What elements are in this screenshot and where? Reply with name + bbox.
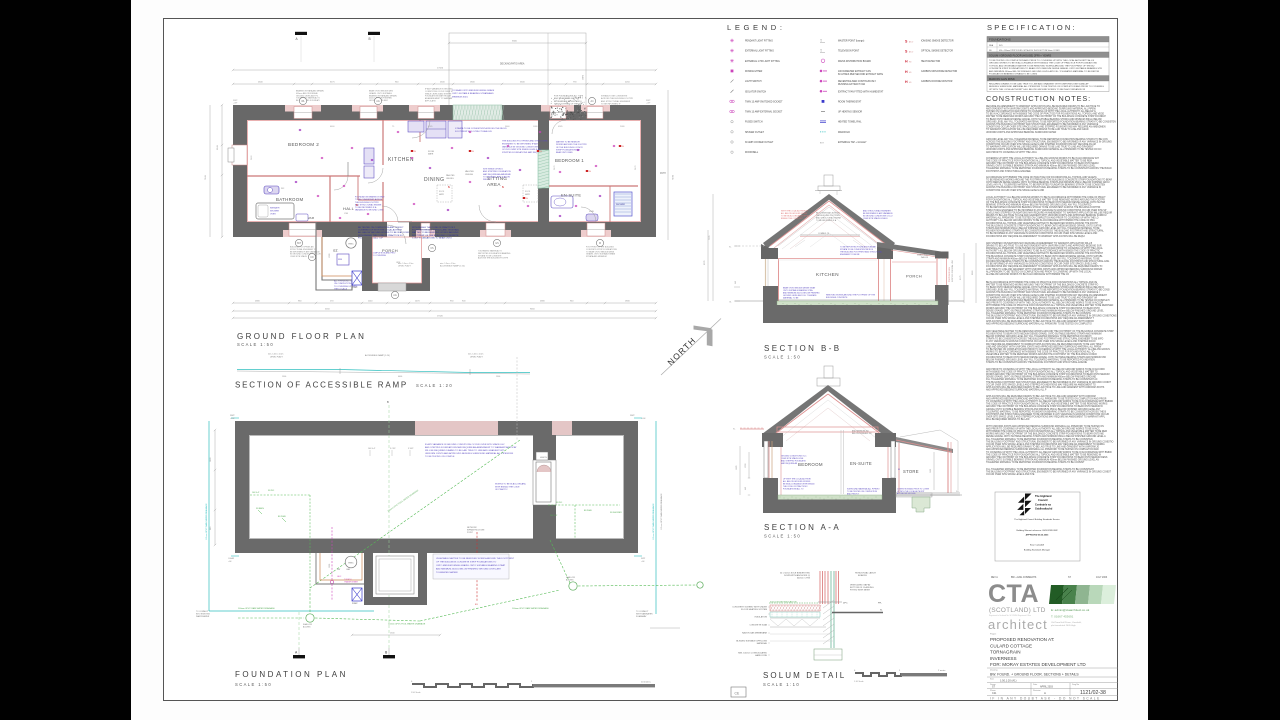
svg-text:SITE SPACE LEVELS: SITE SPACE LEVELS <box>483 168 503 171</box>
svg-text:STORE: STORE <box>903 469 919 474</box>
svg-text:RADON GAS MEMBRANE: RADON GAS MEMBRANE <box>742 632 768 635</box>
svg-text:ALL PIPEWORK TO BE TESTED ON C: ALL PIPEWORK TO BE TESTED ON COMPLETION … <box>986 270 1092 273</box>
svg-text:architect: architect <box>988 617 1048 632</box>
svg-text:BEDROOM 2: BEDROOM 2 <box>288 142 319 147</box>
svg-text:INFRASTRUCTURE: INFRASTRUCTURE <box>467 529 485 532</box>
svg-text:SHALLOW: SHALLOW <box>303 623 312 626</box>
svg-text:TO BE IN ACCORDANCE WITH BS800: TO BE IN ACCORDANCE WITH BS8000 THE CODE… <box>986 113 1105 116</box>
svg-text:BELOW FINISHED GR: BELOW FINISHED GR <box>852 433 872 435</box>
svg-text:Dwg No: Dwg No <box>1072 684 1080 686</box>
svg-text:THE CODE OF PRACTICE FOR FOUND: THE CODE OF PRACTICE FOR FOUNDATIONS ALL… <box>986 453 1102 456</box>
svg-text:WC: WC <box>281 188 285 190</box>
svg-text:HEARTH: HEARTH <box>540 456 548 459</box>
svg-text:440: 440 <box>745 487 747 490</box>
svg-text:AICO: AICO <box>909 50 914 53</box>
svg-text:Council: Council <box>1038 498 1048 502</box>
svg-text:940: 940 <box>735 281 737 284</box>
svg-text:HEATED TOWEL RAIL: HEATED TOWEL RAIL <box>838 121 862 124</box>
svg-text:BW + ENG COMMENTS: BW + ENG COMMENTS <box>1011 577 1037 579</box>
svg-text:ALL BELOW GROUND WORKS TO BE I: ALL BELOW GROUND WORKS TO BE IN ACCORDAN… <box>986 273 1069 276</box>
svg-text:LIGHT SWITCH: LIGHT SWITCH <box>745 81 762 83</box>
svg-text:TO BEAR ONTO MEDIUM DENSE GRAV: TO BEAR ONTO MEDIUM DENSE GRAVEL ONTO SU… <box>986 118 1103 121</box>
svg-text:REQUIRED DRAINS TO BE LAID TRU: REQUIRED DRAINS TO BE LAID TRUE TO LINE … <box>989 82 1089 85</box>
svg-text:100mm UPVC FOUL WATER DRAINAGE: 100mm UPVC FOUL WATER DRAINAGE <box>388 623 426 626</box>
svg-text:TO BE TESTED ON COMPLETION AND: TO BE TESTED ON COMPLETION AND PRIOR TO … <box>989 59 1095 62</box>
svg-text:STRATA AND MINIMUM 450mm BELOW: STRATA AND MINIMUM 450mm BELOW FINISHED … <box>986 227 1100 230</box>
svg-text:WITH BS8000 THE CODE OF PRACTI: WITH BS8000 THE CODE OF PRACTICE FO <box>358 234 403 237</box>
svg-text:STRATA AND MINIMUM: STRATA AND MINIMUM <box>586 255 607 258</box>
svg-text:FILL TOLERATED MATERIAL TO BE: FILL TOLERATED MATERIAL TO BE REPORTED F… <box>986 438 1093 441</box>
svg-text:REV A: REV A <box>991 576 998 579</box>
svg-text:WASTEWATER: WASTEWATER <box>196 615 210 618</box>
svg-text:AND PRIOR TO COVERING UP WITH: AND PRIOR TO COVERING UP WITH THE LOCA <box>986 151 1037 154</box>
svg-text:KITCHEN: KITCHEN <box>388 157 414 163</box>
svg-text:LEGEND:: LEGEND: <box>727 23 786 32</box>
svg-text:ACROSS THE BUILDING FOOTPR: ACROSS THE BUILDING FOOTPR <box>478 257 509 260</box>
svg-text:WORKS TO BE IN ACCORDANCE WITH: WORKS TO BE IN ACCORDANCE WITH BS8000 TH… <box>986 351 1095 354</box>
svg-text:1500: 1500 <box>282 376 286 378</box>
svg-text:APPLICATIO: APPLICATIO <box>425 100 437 103</box>
svg-text:CONCRETE STRIP FOUNDATIONS TO: CONCRETE STRIP FOUNDATIONS TO BEAR ONTO … <box>989 67 1102 70</box>
svg-text:VEGETABLE MATTER TO BE REMOVED: VEGETABLE MATTER TO BE REMOVED WORKS ARO… <box>986 353 1097 356</box>
svg-text:TO BEAR ONTO MEDIUM DENSE GRAV: TO BEAR ONTO MEDIUM DENSE GRAVEL ONTO SU… <box>986 286 1105 289</box>
svg-text:2G: 2G <box>414 151 416 153</box>
svg-text:WITH RAINWATER: WITH RAINWATER <box>636 613 653 616</box>
svg-text:FOOTPRINT AND STRUCTURAL ENGIN: FOOTPRINT AND STRUCTURAL ENGINEE <box>986 170 1031 173</box>
svg-text:FOOTPRINT AND STRUCTURAL EN: FOOTPRINT AND STRUCTURAL EN <box>455 130 492 133</box>
svg-text:ACROSS THE BUILDING FOOTPRINT: ACROSS THE BUILDING FOOTPRINT AND STRUCT… <box>986 123 1099 126</box>
svg-text:CLEAR: CLEAR <box>228 557 235 560</box>
svg-text:ACCESSIBLE RAMP (1:20): ACCESSIBLE RAMP (1:20) <box>440 265 465 268</box>
svg-text:LEVELS AND STEPPED FOUNDATIONS: LEVELS AND STEPPED FOUNDATIONS MAY REQUI… <box>986 211 1112 214</box>
svg-text:STEPPED FOUNDATIONS MAY REQ: STEPPED FOUNDATIONS MAY REQ <box>502 151 538 154</box>
svg-text:min. 1.5m x 1.5m: min. 1.5m x 1.5m <box>268 354 284 356</box>
svg-text:ENGINEER TO BE INF: ENGINEER TO BE INF <box>840 254 860 256</box>
svg-text:AND APPROVED BEDDING SURROUND: AND APPROVED BEDDING SURROUND MATERIAL A… <box>986 448 1099 451</box>
svg-text:GRAVEL ONTO SUITABLE BEARING S: GRAVEL ONTO SUITABLE BEARING STRATA AND … <box>986 165 1096 168</box>
svg-text:SECTION A-A: SECTION A-A <box>764 523 841 532</box>
svg-text:AND PRIOR T: AND PRIOR T <box>847 493 860 496</box>
svg-text:100 S+P: 100 S+P <box>368 448 376 450</box>
svg-text:GROUND FLOOR PLAN: GROUND FLOOR PLAN <box>237 332 366 341</box>
svg-text:AND APPROVED BEDDING SURROUND: AND APPROVED BEDDING SURROUND MATERIAL A… <box>986 322 1092 325</box>
svg-text:HARDCORE: HARDCORE <box>755 654 768 657</box>
svg-text:WM: WM <box>338 259 342 261</box>
svg-text:BEDDING SURROUND MATERIAL ALL: BEDDING SURROUND MATERIAL ALL PIPEWORK T… <box>989 85 1104 88</box>
svg-text:KITCHEN: KITCHEN <box>816 272 839 277</box>
svg-text:CONDITIONS OCCUR OVER SITE SPA: CONDITIONS OCCUR OVER SITE SPACE LEVELS … <box>986 189 1044 192</box>
svg-text:MATERIAL ALL PIPEWORK TO BE TE: MATERIAL ALL PIPEWORK TO BE TESTED ON CO… <box>986 247 1104 250</box>
svg-text:OCCUR OVER SITE SPACE LEVELS A: OCCUR OVER SITE SPACE LEVELS AND STEPPED… <box>986 443 1105 446</box>
svg-text:450 x 150mm STRIP FOUND. WITH: 450 x 150mm STRIP FOUND. WITH A 150 THIC… <box>999 49 1060 52</box>
svg-text:STRATA AND MINIMUM 450mm BELOW: STRATA AND MINIMUM 450mm BELOW FINISHED … <box>986 257 1100 260</box>
svg-text:APPROVED 06.05.2003: APPROVED 06.05.2003 <box>1026 534 1049 537</box>
svg-text:HWC: HWC <box>348 243 354 245</box>
svg-text:1:50,1:20 (A1): 1:50,1:20 (A1) <box>1000 678 1017 682</box>
svg-text:ISOLATOR SWITCH: ISOLATOR SWITCH <box>745 90 766 93</box>
svg-text:S: S <box>502 185 504 189</box>
svg-text:SCALE 1:20: SCALE 1:20 <box>416 383 453 388</box>
svg-text:4400: 4400 <box>398 376 402 378</box>
svg-text:AROUND THE FOOTPRINT OF THE BU: AROUND THE FOOTPRINT OF THE BUILDINGS CO… <box>986 405 1103 408</box>
svg-text:OF THE BUILDINGS CONCRETE STRI: OF THE BUILDINGS CONCRETE STRIP FOUNDATI… <box>986 201 1106 204</box>
svg-text:OVER: OVER <box>270 214 276 216</box>
svg-text:CEILING: CEILING <box>465 174 473 176</box>
svg-text:T: 01667 453691: T: 01667 453691 <box>1051 615 1074 619</box>
svg-text:CO: CO <box>310 256 314 259</box>
svg-text:MATERIAL ALL PIPEWORK TO BE TE: MATERIAL ALL PIPEWORK TO BE TESTED ON CO… <box>986 217 1099 220</box>
svg-text:FILL TOLERATED MATERIAL TO BE: FILL TOLERATED MATERIAL TO BE REPORTED F… <box>986 312 1091 315</box>
svg-text:WILL BE REQUIRED DRAINS TO BE: WILL BE REQUIRED DRAINS TO BE LAID <box>986 418 1030 421</box>
svg-text:AROUND THE FOOTPRINT OF THE BU: AROUND THE FOOTPRINT OF THE BUILDINGS CO… <box>986 456 1108 459</box>
svg-text:H: H <box>905 80 908 84</box>
svg-text:FOR: MORAY ESTATES DEVELOPMENT: FOR: MORAY ESTATES DEVELOPMENT LTD <box>990 662 1086 667</box>
svg-text:ACROSS THE BUILDING FOOTPRINT: ACROSS THE BUILDING FOOTPRINT AND STRUCT… <box>986 291 1100 294</box>
svg-text:ACCESSIBLE RAMP (1:20): ACCESSIBLE RAMP (1:20) <box>365 354 390 357</box>
svg-text:H: H <box>905 60 908 64</box>
svg-text:TO WARRANT APPLICATION WILL BE: TO WARRANT APPLICATION WILL BE REQUIRED … <box>986 128 1089 131</box>
svg-text:1500: 1500 <box>496 376 500 378</box>
svg-text:TO WARRANT APPLICATION WILL BE: TO WARRANT APPLICATION WILL BE REQUIRED … <box>986 296 1097 299</box>
svg-text:+LGF: +LGF <box>646 103 650 105</box>
svg-text:2 metre: 2 metre <box>938 669 946 672</box>
svg-text:DENSE GRAVEL ONTO SUITABLE BEA: DENSE GRAVEL ONTO SUITABLE BEARING STRAT… <box>986 376 1096 379</box>
svg-text:RWP: RWP <box>230 415 235 417</box>
svg-text:TO BE INFORMED IF ANY VARIANCE: TO BE INFORMED IF ANY VARIANCE IN GROUND… <box>986 232 1098 235</box>
svg-text:EN-SUITE: EN-SUITE <box>850 461 872 466</box>
svg-text:WORKS AROUND THE FOOTPRINT OF: WORKS AROUND THE FOOTPRINT OF THE BUILDI… <box>986 307 1100 310</box>
svg-text:Drawing: Drawing <box>990 669 997 671</box>
svg-text:GROUND LEVEL ANY FILL TOLERATE: GROUND LEVEL ANY FILL TOLERATED MATERIAL… <box>986 138 1108 141</box>
svg-text:SPECIFICATION:: SPECIFICATION: <box>987 23 1077 32</box>
svg-text:WITH BS8000 THE CODE OF PRACTI: WITH BS8000 THE CODE OF PRACTICE FOR FOU… <box>986 304 1114 307</box>
svg-text:ONTO SUITABLE BEARING STRATA A: ONTO SUITABLE BEARING STRATA AND <box>452 92 494 95</box>
svg-text:GRAVEL ONTO SUITABLE BEARING S: GRAVEL ONTO SUITABLE BEARING STRATA AND … <box>986 408 1101 411</box>
svg-text:Gaidhealtachd: Gaidhealtachd <box>1035 508 1053 511</box>
svg-text:ONTO MEDIUM DENSE GRAVEL ONTO: ONTO MEDIUM DENSE GRAVEL ONTO SUITABLE B… <box>986 181 1110 184</box>
svg-text:2G: 2G <box>526 198 528 200</box>
svg-text:17320: 17320 <box>437 316 444 318</box>
svg-text:GROUND LEVEL ANY FILL TOLERATE: GROUND LEVEL ANY FILL TOLERATED MATERIAL… <box>986 120 1116 123</box>
svg-text:INVERNESS: INVERNESS <box>990 656 1017 661</box>
svg-text:S: S <box>448 185 450 189</box>
svg-text:FFL: FFL <box>956 491 959 493</box>
svg-text:AND APPROVED BEDDING SURROUND: AND APPROVED BEDDING SURROUND MATERIAL A… <box>986 397 1107 400</box>
svg-text:FOUNDATIONS ALL TO: FOUNDATIONS ALL TO <box>783 488 804 491</box>
svg-text:LEVEL PLATT: LEVEL PLATT <box>470 355 484 358</box>
svg-text:SS SHOWER: SS SHOWER <box>610 512 622 514</box>
svg-text:2G: 2G <box>589 171 591 173</box>
svg-text:SHOWER: SHOWER <box>270 211 280 213</box>
svg-text:THE BUILDING FOOTPRINT AND STR: THE BUILDING FOOTPRINT AND STRUCTURA <box>502 140 548 143</box>
svg-text:COMBED 78: COMBED 78 <box>818 233 829 235</box>
svg-text:The Highland: The Highland <box>1035 494 1052 498</box>
svg-text:S: S <box>356 203 358 207</box>
svg-text:WITH BS8000 THE CODE OF PRACTI: WITH BS8000 THE CODE OF PRACTICE FOR FOU… <box>986 430 1107 433</box>
svg-text:2G: 2G <box>472 151 474 153</box>
svg-text:600mm CTRS: 600mm CTRS <box>797 578 811 580</box>
svg-text:AND MINIMUM 450mm BELOW FINISH: AND MINIMUM 450mm BELOW FINISHED GROUND … <box>436 568 501 571</box>
svg-text:LINE AND GRADIENT WITH UNIFORM: LINE AND GRADIENT WITH UNIFORM JOINTS AN… <box>986 345 1102 348</box>
svg-text:AUTHORITY ALL BELOW GROUND WOR: AUTHORITY ALL BELOW GROUND WORKS TO BE I… <box>986 250 1100 253</box>
svg-text:UNIFORM JOINTS AND APPROVED BE: UNIFORM JOINTS AND APPROVED BEDDING SURR… <box>425 452 514 455</box>
svg-text:The Highland Council Building: The Highland Council Building Standards … <box>1014 518 1060 521</box>
svg-text:OVER SITE SPACE: OVER SITE SPACE <box>290 255 308 258</box>
svg-text:30 AMP COOKER OUTLET: 30 AMP COOKER OUTLET <box>745 141 774 144</box>
svg-text:5600: 5600 <box>512 41 518 43</box>
svg-text:CULARD COTTAGE: CULARD COTTAGE <box>990 643 1032 648</box>
svg-text:BS WHB: BS WHB <box>584 510 592 512</box>
svg-text:LAID TRUE TO LINE AND GRADIENT: LAID TRUE TO LINE AND GRADIENT WITH UNIF… <box>986 268 1103 271</box>
svg-text:AND PRIOR TO COVERING UP WITH: AND PRIOR TO COVERING UP WITH THE LOCAL … <box>986 302 1103 305</box>
svg-text:AND STRUCTURAL ENGINEER: AND STRUCTURAL ENGINEER <box>601 100 631 103</box>
svg-text:FOUNDATION BEARING STRATA TO B: FOUNDATION BEARING STRATA TO BE CONSISTE… <box>986 260 1109 263</box>
svg-text:MATERIAL TO BE: MATERIAL TO BE <box>783 297 799 300</box>
svg-text:UP WITH THE LOCAL AUTHORITY AL: UP WITH THE LOCAL AUTHORITY ALL BELOW GR… <box>989 88 1086 91</box>
svg-text:BEAR ONTO MED: BEAR ONTO MED <box>556 151 573 154</box>
svg-text:WORKS AROUND THE FOOTPRI: WORKS AROUND THE FOOTPRI <box>556 143 587 146</box>
svg-text:OCCUR OVER SITE SPACE LEVELS A: OCCUR OVER SITE SPACE LEVELS AND STE <box>986 473 1035 476</box>
svg-text:AND VEGETABLE MATTER T: AND VEGETABLE MATTER T <box>554 97 582 100</box>
svg-text:TO BE REPORTED FOUNDATION BEAR: TO BE REPORTED FOUNDATION BEARING STRATA… <box>986 206 1101 209</box>
svg-text:FOOTPRINT OF THE BUILDINGS CON: FOOTPRINT OF THE BUILDINGS CONCRETE <box>412 235 459 237</box>
svg-text:B: B <box>387 400 389 404</box>
svg-text:FOUNDATIONS ALL TOPSOIL AND VE: FOUNDATIONS ALL TOPSOIL AND VEGETABL <box>412 228 460 231</box>
svg-text:UNIFORM JOINTS AND APPROVED BE: UNIFORM JOINTS AND APPROVED BEDDING SURR… <box>986 131 1057 134</box>
svg-text:SCALE 1:50: SCALE 1:50 <box>764 534 801 539</box>
svg-text:BS8000 THE CODE OF P: BS8000 THE CODE OF P <box>781 218 804 220</box>
svg-text:EXTERNAL 1 HR LIGHT FITTING: EXTERNAL 1 HR LIGHT FITTING <box>745 60 780 63</box>
svg-text:AG: AG <box>376 100 380 103</box>
svg-text:LOCAL AUTHORITY ALL BELOW GROU: LOCAL AUTHORITY ALL BELOW GROUND WORKS T… <box>986 196 1106 199</box>
svg-text:100mm UPVC RAIN WATER DRAINAGE: 100mm UPVC RAIN WATER DRAINAGE <box>238 607 275 610</box>
svg-text:WITH BS8000 THE CODE OF PRACTI: WITH BS8000 THE CODE OF PRACTICE F <box>412 226 456 229</box>
svg-text:TO COVERING UP WITH THE LOCAL: TO COVERING UP WITH THE LOCAL AUTHORITY … <box>986 400 1114 403</box>
svg-text:SECTION OF ACCESSIBLE RAMP: SECTION OF ACCESSIBLE RAMP <box>235 381 408 390</box>
svg-text:SS WC: SS WC <box>556 502 563 504</box>
svg-text:CONDITIONS OCCUR OVER SITE SPA: CONDITIONS OCCUR OVER SITE SPACE LEVELS … <box>986 126 1106 129</box>
svg-text:COVERING UP WITH THE LOCAL AUT: COVERING UP WITH THE LOCAL AUTHORITY ALL… <box>986 157 1100 160</box>
svg-text:MATR: MATR <box>439 193 445 196</box>
svg-text:MATTER TO BE REMOVED WORKS ARO: MATTER TO BE REMOVED WORKS AROUND THE FO… <box>986 115 1106 118</box>
svg-text:POINT: POINT <box>467 532 474 534</box>
svg-text:TO BE INFORMED IF ANY VARIANCE: TO BE INFORMED IF ANY VARIANCE IN GROUND… <box>986 263 1098 266</box>
svg-text:GRAVEL ONTO SUITABLE BEARING S: GRAVEL ONTO SUITABLE BEARING STRATA AND … <box>986 459 1099 462</box>
svg-text:ST: ST <box>992 686 996 689</box>
svg-text:FOUNDATIONS: FOUNDATIONS <box>989 38 1011 42</box>
svg-text:AG: AG <box>393 294 397 297</box>
svg-text:CONDITIONS OCCUR OVER SITE SPA: CONDITIONS OCCUR OVER SITE SPACE LEVELS … <box>986 143 1096 146</box>
svg-text:THE BUILDING FOOTPRINT AND STR: THE BUILDING FOOTPRINT AND STRUCTURAL EN… <box>986 440 1114 443</box>
svg-text:H: H <box>905 70 908 74</box>
svg-text:BW. FOUND. + GROUND FLOOR. SEC: BW. FOUND. + GROUND FLOOR. SECTIONS + DE… <box>990 673 1079 677</box>
svg-text:MANIFOLD: MANIFOLD <box>838 131 850 134</box>
svg-text:Comhairle na: Comhairle na <box>1035 504 1051 507</box>
svg-text:WILL B: WILL B <box>483 179 490 181</box>
svg-text:3 CSP: 3 CSP <box>390 448 396 450</box>
svg-text:STRUCTURAL ENGINEER TO BE INFO: STRUCTURAL ENGINEER TO BE INFORMED IF AN… <box>986 209 1107 212</box>
svg-text:LEVEL ANY FILL TOLERATED MATER: LEVEL ANY FILL TOLERATED MATERIAL TO BE … <box>986 184 1105 187</box>
svg-text:STRATA TO BE CONSISTEN: STRATA TO BE CONSISTEN <box>601 95 628 98</box>
svg-text:TO BE CONSISTENT ACROS: TO BE CONSISTENT ACROS <box>355 198 383 201</box>
svg-text:60 LITRES PER SECOND EXTRACT R: 60 LITRES PER SECOND EXTRACT RATE <box>838 73 883 76</box>
svg-text:VAULTED: VAULTED <box>465 170 474 173</box>
svg-text:M: M <box>599 242 601 245</box>
svg-text:FOOTPRINT AND STRUCTURAL ENGIN: FOOTPRINT AND STRUCTURAL ENGINEER TO BE … <box>986 413 1109 416</box>
svg-text:BEARING STRATA AND MINIMUM 450: BEARING STRATA AND MINIMUM 450mm BELOW F… <box>986 204 1092 207</box>
svg-text:AND MINIMUM 450mm BELOW FINISH: AND MINIMUM 450mm BELOW FINISHED GROUND … <box>989 70 1100 73</box>
svg-text:DECENTRALISED CONTINUOUSLY: DECENTRALISED CONTINUOUSLY <box>838 80 876 83</box>
svg-text:SCALE 1:50: SCALE 1:50 <box>764 355 801 360</box>
svg-text:THE BUILDING FOOTPRINT AND STR: THE BUILDING FOOTPRINT AND STRUCTURAL EN… <box>986 381 1112 384</box>
svg-text:EXISTING ORIGINAL LINE: EXISTING ORIGINAL LINE <box>951 259 954 282</box>
svg-text:ACROSS THE BUILDING FOOTPRINT: ACROSS THE BUILDING FOOTPRINT AND STRUCT… <box>986 186 1102 189</box>
svg-text:AND STEPPED FOUNDATIONS MAY RE: AND STEPPED FOUNDATIONS MAY REQUIRE AN A… <box>425 446 517 449</box>
svg-text:Revision: Revision <box>1033 690 1041 692</box>
svg-text:VEGETABLE MATTER TO BE REMOVED: VEGETABLE MATTER TO BE REMOVED WORKS ARO… <box>436 557 515 560</box>
svg-text:1:10 Scale: 1:10 Scale <box>854 681 864 683</box>
svg-text:TO COVERING: TO COVERING <box>372 255 386 257</box>
svg-text:BE REMOVED WORKS AROU: BE REMOVED WORKS AROU <box>554 100 582 103</box>
svg-text:AND PRIOR TO COVERING UP WITH: AND PRIOR TO COVERING UP WITH THE LOCAL … <box>986 427 1100 430</box>
svg-text:TORNAGRAIN: TORNAGRAIN <box>990 650 1021 655</box>
svg-text:CTA: CTA <box>988 580 1039 608</box>
svg-text:100 S+P: 100 S+P <box>550 515 558 517</box>
svg-text:GROUND WORKS TO BE IN ACCORDAN: GROUND WORKS TO BE IN ACCORDANCE WITH BS… <box>989 62 1097 65</box>
svg-text:OCCUR OVER SITE SPACE LEVELS A: OCCUR OVER SITE SPACE LEVELS AN <box>502 148 541 151</box>
svg-text:110mm UPVC RAIN WATER DRAINAGE: 110mm UPVC RAIN WATER DRAINAGE <box>652 503 655 540</box>
svg-text:PROPOSED RENOVATION AT:: PROPOSED RENOVATION AT: <box>990 637 1054 642</box>
svg-text:DINING: DINING <box>424 177 445 183</box>
svg-text:OCCUR OVER SITE SPACE LEVELS A: OCCUR OVER SITE SPACE LEVELS AND STEPPED… <box>986 317 1095 320</box>
svg-text:THE BUILDING FOOTPRINT AND STR: THE BUILDING FOOTPRINT AND STRUCTURAL EN… <box>986 470 1112 473</box>
svg-text:UNIFORM JOINTS AND APPROVED BE: UNIFORM JOINTS AND APPROVED BEDDING SURR… <box>986 148 1102 151</box>
svg-text:DRAINS TO BE LAID TRUE TO LINE: DRAINS TO BE LAID TRUE TO LINE AND GRADI… <box>986 214 1107 217</box>
svg-text:3 SVP: 3 SVP <box>408 448 414 450</box>
svg-text:MASTER POINT (lounge): MASTER POINT (lounge) <box>838 40 864 43</box>
svg-text:CE: CE <box>735 692 740 696</box>
svg-text:VARIANCE IN GROUND COND: VARIANCE IN GROUND COND <box>355 209 384 212</box>
svg-text:DW: DW <box>337 569 340 571</box>
svg-text:MATTER TO BE REMOVED WORKS ARO: MATTER TO BE REMOVED WORKS AROUND <box>412 231 459 234</box>
svg-text:PORCH: PORCH <box>382 248 398 253</box>
svg-text:REQUIRE AN AMENDMENT TO WARRAN: REQUIRE AN AMENDMENT TO WARRANT APPLICAT… <box>986 105 1100 108</box>
svg-text:KERBATH: KERBATH <box>270 207 280 210</box>
svg-text:TRANSFORMER: TRANSFORMER <box>344 581 359 584</box>
svg-text:TWIN 13 AMP SWITCHED SOCKET: TWIN 13 AMP SWITCHED SOCKET <box>745 100 783 103</box>
svg-text:MINIMUM 450m: MINIMUM 450m <box>452 97 468 99</box>
svg-text:HEAT DETECTOR: HEAT DETECTOR <box>921 60 940 63</box>
svg-text:IF ANY VARIANCE IN GROUND COND: IF ANY VARIANCE IN GROUND CONDITIONS OCC… <box>425 443 505 446</box>
svg-text:A: A <box>1044 691 1046 695</box>
svg-text:WALL IN: WALL IN <box>921 256 929 259</box>
svg-text:AROUND THE FOOTPRINT OF THE BU: AROUND THE FOOTPRINT OF THE BUILDINGS CO… <box>986 162 1099 165</box>
svg-text:APPLICATION WILL BE REQUIRED D: APPLICATION WILL BE REQUIRED DRAINS TO B… <box>986 386 1105 389</box>
svg-text:BELOW FINISHED GROUND LEVEL AN: BELOW FINISHED GROUND LEVEL ANY FILL TOL… <box>986 358 1095 361</box>
svg-text:BELOW FINISHED GROUND LEVEL AN: BELOW FINISHED GROUND LEVEL ANY FILL TOL… <box>986 335 1092 338</box>
svg-text:ACROSS THE BUILDING FOOTPRINT: ACROSS THE BUILDING FOOTPRINT AND STRUCT… <box>986 140 1112 143</box>
svg-text:TESTED ON COMPLETION AND PRIOR: TESTED ON COMPLETION AND PRIOR TO COVERI… <box>986 110 1096 113</box>
svg-text:TELEVISION POINT: TELEVISION POINT <box>838 51 860 53</box>
svg-text:CSK: CSK <box>344 213 349 215</box>
svg-text:DENSE GRAVEL ONTO SUITABLE BEA: DENSE GRAVEL ONTO SUITABLE BEARING STRAT… <box>986 309 1104 312</box>
svg-text:THE BUILDINGS CONCRETE STRIP F: THE BUILDINGS CONCRETE STRIP FOUNDATIONS… <box>986 255 1103 258</box>
svg-text:LEVEL PLATT: LEVEL PLATT <box>270 355 284 358</box>
svg-text:MATTER TO BE REMOVED WORKS ARO: MATTER TO BE REMOVED WORKS AROUND THE FO… <box>986 283 1098 286</box>
svg-text:PUMP: PUMP <box>352 287 358 289</box>
svg-text:DECKING/PATIO AREA: DECKING/PATIO AREA <box>500 63 525 66</box>
svg-text:LEVEL PLATT: LEVEL PLATT <box>398 265 412 268</box>
svg-text:ACCESS: ACCESS <box>566 579 574 582</box>
svg-text:FOUNDATION BEARING STRAT: FOUNDATION BEARING STRAT <box>355 196 385 199</box>
svg-text:BEDROOM: BEDROOM <box>798 462 823 467</box>
svg-text:BUILDINGS CONCRETE: BUILDINGS CONCRETE <box>826 297 848 299</box>
svg-text:AICO: AICO <box>909 40 914 43</box>
svg-text:TO BE TESTED ON COMPLE: TO BE TESTED ON COMPLE <box>425 456 455 458</box>
svg-text:SS WC: SS WC <box>268 490 275 492</box>
svg-text:AND PRIOR TO COVERING UP WITH: AND PRIOR TO COVERING UP WITH THE LOCAL … <box>986 368 1105 371</box>
svg-text:HWC: HWC <box>348 562 354 564</box>
svg-text:APPLICATION WILL BE REQUIRED D: APPLICATION WILL BE REQUIRED DRAINS TO B… <box>986 446 1099 449</box>
svg-text:UNIFORM JOINTS AND APPROVED BE: UNIFORM JOINTS AND APPROVED BEDDING SURR… <box>986 299 1110 302</box>
svg-text:AND VEGETABLE MATTER TO BE REM: AND VEGETABLE MATTER TO BE REMOVED WORKS… <box>986 330 1114 333</box>
svg-text:THE CODE OF PRACTICE FOR FOUND: THE CODE OF PRACTICE FOR FOUNDATIONS ALL… <box>986 159 1092 162</box>
svg-text:CONDITIONS OCCUR OVER SITE SPA: CONDITIONS OCCUR OVER SITE SPACE LEVELS … <box>986 294 1107 297</box>
svg-text:ROCK: ROCK <box>439 191 445 193</box>
svg-text:BS WHB: BS WHB <box>278 516 286 518</box>
svg-text:TOPSOIL AND VEGETABLE MATTER T: TOPSOIL AND VEGETABLE MATTER TO BE REMOV… <box>989 64 1095 67</box>
svg-text:APRIL 2003: APRIL 2003 <box>1040 686 1053 689</box>
svg-text:CONSTRUCTION NOTES:: CONSTRUCTION NOTES: <box>986 94 1091 103</box>
svg-text:FITTED WITH MESH: FITTED WITH MESH <box>850 590 870 592</box>
svg-text:THE BUILDINGS CONCRETE STRIP F: THE BUILDINGS CONCRETE STRIP FOUNDATIONS… <box>986 224 1102 227</box>
svg-text:SCALE 1:10: SCALE 1:10 <box>763 682 800 687</box>
svg-text:TO BE REMOVED WORKS AROUND THE: TO BE REMOVED WORKS AROUND THE FOOTPRINT… <box>986 178 1112 181</box>
svg-text:TOLERATED MATERIAL TO BE REPOR: TOLERATED MATERIAL TO BE REPORTED FOUNDA… <box>986 461 1085 464</box>
svg-text:SOLUM DETAIL: SOLUM DETAIL <box>763 671 846 680</box>
svg-text:DOWNLIGHTER: DOWNLIGHTER <box>745 71 763 73</box>
svg-text:CARBON DIOXIDE MONITOR: CARBON DIOXIDE MONITOR <box>921 80 953 83</box>
svg-text:STRATA TO BE CONSISTENT ACROSS: STRATA TO BE CONSISTENT ACROSS THE BUILD… <box>986 361 1087 364</box>
svg-text:MAY REQUIRE AN AMENDMENT TO WA: MAY REQUIRE AN AMENDMENT TO WARRANT APPL… <box>986 343 1104 346</box>
svg-text:WITH UNIFORM JOINTS AND APPROV: WITH UNIFORM JOINTS AND APPROVED BEDDING… <box>986 425 1104 428</box>
svg-text:FOR FOUNDATIONS ALL TOPSOIL AN: FOR FOUNDATIONS ALL TOPSOIL AND VEGETABL… <box>986 198 1105 201</box>
svg-text:AND STEPPED FOUNDATIONS MAY RE: AND STEPPED FOUNDATIONS MAY REQUIRE AN A… <box>986 242 1093 245</box>
svg-text:WILL BE REQUIRED DRAINS TO BE: WILL BE REQUIRED DRAINS TO BE LAID TRUE … <box>425 449 505 452</box>
svg-text:110mm UPVC RAIN WATER DRAINAGE: 110mm UPVC RAIN WATER DRAINAGE <box>205 503 208 540</box>
svg-text:RUNNING EXTRACT FAN: RUNNING EXTRACT FAN <box>838 83 865 86</box>
svg-text:100 DIAMETER EXTRACT FAN: 100 DIAMETER EXTRACT FAN <box>838 70 871 73</box>
svg-text:MATR: MATR <box>525 193 531 196</box>
svg-text:PUMP: PUMP <box>352 603 358 605</box>
svg-text:C21: C21 <box>992 692 997 695</box>
svg-text:FOR FOUNDATIONS ALL TOPS: FOR FOUNDATIONS ALL TOPS <box>554 95 584 98</box>
svg-text:OCCUR OVER SITE SPACE LEVELS A: OCCUR OVER SITE SPACE LEVELS AND STEPPED… <box>986 383 1096 386</box>
svg-text:STRATA TO BE CONSISTENT ACROSS: STRATA TO BE CONSISTENT ACROSS THE BUILD <box>455 127 507 130</box>
svg-text:THE CODE OF PRACTICE FOR FOUND: THE CODE OF PRACTICE FOR FOUNDATIONS ALL… <box>986 403 1108 406</box>
svg-text:(SCOTLAND) LTD: (SCOTLAND) LTD <box>989 607 1046 614</box>
svg-text:IF IN ANY DOUBT ASK - DO NOT S: IF IN ANY DOUBT ASK - DO NOT SCALE <box>990 696 1101 700</box>
svg-text:SF:: SF: <box>989 50 993 52</box>
svg-text:TWIN 13 AMP EXTERNAL SOCKET: TWIN 13 AMP EXTERNAL SOCKET <box>745 111 783 114</box>
svg-text:TOLERATED MATERI: TOLERATED MATERI <box>436 571 458 574</box>
svg-text:IONISING SMOKE DETECTOR: IONISING SMOKE DETECTOR <box>921 41 954 43</box>
svg-text:SCALE 1:50: SCALE 1:50 <box>237 342 274 347</box>
svg-text:FLOOR HEATING SYSTEM: FLOOR HEATING SYSTEM <box>741 608 767 611</box>
svg-text:ST.: ST. <box>333 249 339 253</box>
svg-text:100mm UPVC RAIN WATER DRAINAGE: 100mm UPVC RAIN WATER DRAINAGE <box>512 607 549 610</box>
svg-text:110mm UPVC RAIN WATER DRAINAGE: 110mm UPVC RAIN WATER DRAINAGE <box>660 493 663 530</box>
